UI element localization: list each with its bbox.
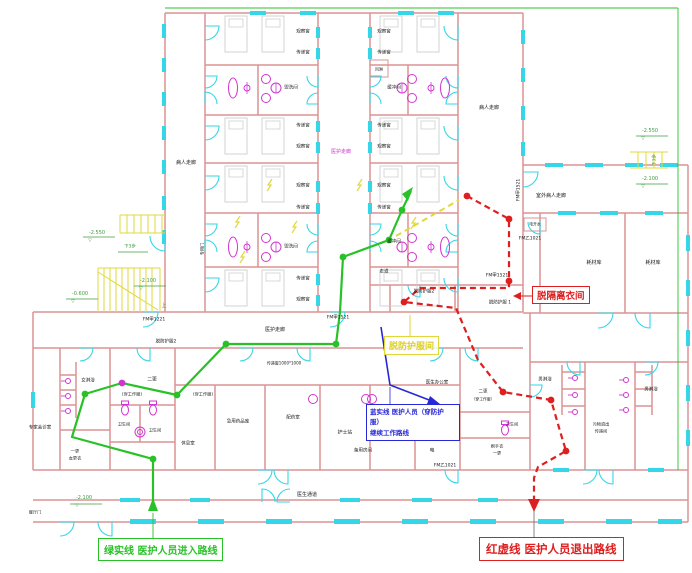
room-label: 医护走廊 bbox=[265, 326, 285, 333]
window-mark bbox=[334, 519, 360, 524]
door-arc bbox=[60, 522, 74, 536]
room-label: 耗材库 bbox=[645, 259, 660, 266]
room-label: 盥洗间 bbox=[284, 243, 298, 250]
lightning-mark-icon bbox=[357, 179, 362, 191]
room-label: 医生办公室 bbox=[426, 379, 449, 386]
window-mark bbox=[300, 11, 316, 15]
route-node-dot bbox=[548, 397, 555, 404]
window-mark bbox=[368, 142, 372, 153]
window-mark bbox=[190, 498, 210, 502]
basin-icon bbox=[408, 94, 417, 103]
room-label: 专用门 bbox=[199, 243, 206, 256]
entry-route-legend: 绿实线 医护人员进入路线 bbox=[98, 538, 223, 561]
door-arc bbox=[80, 348, 93, 361]
window-mark bbox=[412, 498, 432, 502]
shower-head-icon bbox=[573, 410, 578, 415]
window-mark bbox=[686, 430, 690, 446]
route-arrowhead bbox=[528, 499, 540, 512]
room-label: 卫生间 bbox=[118, 421, 131, 428]
window-mark bbox=[340, 498, 360, 502]
window-mark bbox=[368, 27, 372, 38]
room-label: 走道 bbox=[380, 268, 389, 275]
tub-fixture-icon bbox=[441, 78, 450, 98]
room-label: 病人走廊 bbox=[479, 104, 499, 111]
door-arc bbox=[446, 224, 458, 236]
route-node-dot bbox=[464, 193, 471, 200]
shower-head-icon bbox=[66, 409, 71, 414]
window-mark bbox=[162, 160, 166, 174]
bed-pillow bbox=[266, 19, 280, 27]
door-arc bbox=[205, 176, 219, 190]
room-label: 女更衣 bbox=[69, 455, 82, 462]
window-mark bbox=[521, 68, 525, 82]
door-arc bbox=[205, 126, 219, 140]
continue-work-note-line2: 继续工作路线 bbox=[370, 429, 409, 437]
window-mark bbox=[686, 280, 690, 296]
door-arc bbox=[137, 348, 150, 361]
room-label: 休息室 bbox=[181, 440, 195, 447]
room-label: ▽ bbox=[139, 287, 143, 292]
room-label: 污物退出 bbox=[593, 421, 610, 428]
room-label: 下3步 bbox=[124, 244, 136, 250]
window-mark bbox=[368, 48, 372, 59]
room-label: 传递间 bbox=[595, 428, 608, 435]
window-mark bbox=[316, 142, 320, 153]
room-label: 脱防护服 1 bbox=[489, 299, 511, 306]
toilet-icon bbox=[122, 401, 129, 405]
shower-head-icon bbox=[66, 379, 71, 384]
room-label: 卫生间 bbox=[506, 421, 519, 428]
window-mark bbox=[162, 92, 166, 106]
door-arc bbox=[567, 362, 580, 375]
shower-head-icon bbox=[624, 393, 629, 398]
bed bbox=[417, 118, 439, 154]
room-label: -2.100 bbox=[76, 495, 92, 501]
room-label: ▽ bbox=[71, 300, 75, 305]
room-label: 传递窗 bbox=[377, 49, 391, 56]
room-label: 观察窗 bbox=[296, 296, 310, 303]
bed-pillow bbox=[421, 19, 435, 27]
door-arc bbox=[258, 470, 272, 484]
toilet-icon bbox=[122, 405, 129, 415]
remove-isolation-gown-callout: 脱隔离衣间 bbox=[532, 286, 590, 304]
window-mark bbox=[553, 468, 569, 472]
room-label: FM乙1021 bbox=[434, 462, 457, 469]
lightning-mark-icon bbox=[411, 217, 416, 229]
room-label: 观察窗 bbox=[296, 143, 310, 150]
room-label: 电开水 bbox=[529, 222, 541, 227]
bed bbox=[225, 16, 247, 52]
route-node-dot bbox=[506, 278, 513, 285]
window-mark bbox=[521, 30, 525, 44]
room-label: 医护走廊 bbox=[331, 148, 351, 155]
window-mark bbox=[645, 211, 663, 215]
door-arc bbox=[444, 126, 458, 140]
route-node-dot bbox=[119, 380, 126, 387]
window-mark bbox=[686, 235, 690, 251]
bed bbox=[225, 166, 247, 202]
shower-head-icon bbox=[573, 376, 578, 381]
window-mark bbox=[316, 121, 320, 132]
tub-fixture-icon bbox=[229, 237, 238, 257]
route-node-dot bbox=[223, 341, 230, 348]
bed-pillow bbox=[229, 169, 243, 177]
lightning-mark-icon bbox=[235, 216, 240, 228]
window-mark bbox=[198, 519, 224, 524]
bed bbox=[225, 118, 247, 154]
basin-icon bbox=[309, 395, 318, 404]
route-node-dot bbox=[506, 216, 513, 223]
door-arc bbox=[307, 93, 318, 104]
window-mark bbox=[31, 392, 35, 408]
room-label: 传递窗 bbox=[296, 49, 310, 56]
door-arc bbox=[444, 26, 458, 40]
door-arc bbox=[599, 470, 613, 484]
room-label: 男淋浴 bbox=[538, 376, 552, 383]
room-label: 病人走廊 bbox=[176, 159, 196, 166]
basin-icon bbox=[262, 253, 271, 262]
room-label: FM甲1521 bbox=[327, 315, 350, 321]
bed bbox=[225, 270, 247, 306]
window-mark bbox=[658, 519, 682, 524]
window-mark bbox=[545, 163, 563, 167]
route-node-dot bbox=[401, 299, 408, 306]
basin-icon bbox=[408, 75, 417, 84]
room-label: 脱防护服2 bbox=[156, 338, 177, 345]
window-mark bbox=[686, 330, 690, 346]
bed bbox=[262, 270, 284, 306]
exit-route-legend: 红虚线 医护人员退出路线 bbox=[479, 537, 624, 561]
bed bbox=[380, 270, 402, 306]
bed-pillow bbox=[229, 273, 243, 281]
room-label: ▽ bbox=[88, 239, 92, 244]
route-node-dot bbox=[563, 448, 570, 455]
bed-pillow bbox=[229, 121, 243, 129]
window-mark bbox=[368, 121, 372, 132]
door-arc bbox=[446, 92, 458, 104]
toilet-icon bbox=[150, 401, 157, 405]
door-arc bbox=[370, 76, 381, 87]
shower-head-icon bbox=[624, 378, 629, 383]
door-arc bbox=[445, 470, 458, 483]
bed-pillow bbox=[421, 121, 435, 129]
room-label: FM甲1521 bbox=[486, 273, 509, 279]
continue-work-note-line1: 蓝实线 医护人员（穿防护服） bbox=[370, 408, 444, 426]
window-mark bbox=[686, 385, 690, 401]
window-mark bbox=[470, 519, 496, 524]
basin-icon bbox=[408, 234, 417, 243]
window-mark bbox=[162, 126, 166, 140]
window-mark bbox=[120, 498, 140, 502]
door-arc bbox=[307, 241, 318, 252]
door-arc bbox=[598, 313, 613, 328]
door-arc bbox=[444, 176, 458, 190]
window-mark bbox=[316, 203, 320, 214]
room-label: 观察窗 bbox=[377, 182, 391, 189]
room-label: 男淋浴 bbox=[644, 386, 658, 393]
window-mark bbox=[398, 11, 414, 15]
route-node-dot bbox=[150, 456, 157, 463]
window-mark bbox=[585, 163, 603, 167]
room-label: FM甲1521 bbox=[516, 179, 522, 202]
door-arc bbox=[307, 224, 318, 235]
door-arc bbox=[446, 240, 458, 252]
room-label: 传递窗 bbox=[296, 204, 310, 211]
door-arc bbox=[370, 224, 381, 235]
room-label: 下3步 bbox=[652, 154, 658, 166]
lightning-mark-icon bbox=[292, 221, 297, 233]
door-arc bbox=[240, 348, 253, 361]
room-label: FM乙1021 bbox=[519, 235, 542, 242]
door-arc bbox=[205, 240, 217, 252]
room-label: 传递窗 bbox=[296, 275, 310, 282]
window-mark bbox=[162, 196, 166, 210]
room-label: (穿工作服) bbox=[193, 391, 213, 398]
window-mark bbox=[368, 181, 372, 192]
room-label: 一更 bbox=[493, 451, 502, 457]
window-mark bbox=[600, 211, 618, 215]
route-node-dot bbox=[174, 392, 181, 399]
window-mark bbox=[266, 519, 292, 524]
door-arc bbox=[530, 385, 542, 397]
room-label: -2.550 bbox=[89, 230, 105, 236]
room-label: ▽ bbox=[641, 185, 645, 190]
door-arc bbox=[205, 224, 217, 236]
bed bbox=[262, 16, 284, 52]
window-mark bbox=[316, 295, 320, 306]
window-mark bbox=[521, 142, 525, 156]
door-arc bbox=[523, 172, 538, 187]
route-node-dot bbox=[500, 389, 507, 396]
entry-route-line bbox=[72, 191, 411, 507]
room-label: 配药室 bbox=[286, 414, 300, 421]
window-mark bbox=[538, 519, 564, 524]
room-label: 脱防护服2 bbox=[414, 288, 435, 295]
room-label: -2.100 bbox=[642, 176, 658, 182]
route-node-dot bbox=[82, 391, 89, 398]
tub-fixture-icon bbox=[441, 237, 450, 257]
room-label: -0.600 bbox=[72, 291, 88, 297]
door-arc bbox=[446, 76, 458, 88]
window-mark bbox=[478, 498, 498, 502]
room-label: ▽ bbox=[75, 504, 79, 509]
floor-plan-stage: 观察窗传递窗传递窗观察窗观察窗传递窗传递窗观察窗观察窗传递窗传递窗观察窗观察窗传… bbox=[0, 0, 692, 573]
room-label: 缓冲间 bbox=[387, 84, 401, 91]
route-arrowhead bbox=[513, 292, 521, 300]
room-label: 风淋 bbox=[375, 66, 383, 72]
door-arc bbox=[98, 522, 112, 536]
bed-pillow bbox=[384, 169, 398, 177]
room-label: ▽ bbox=[641, 137, 645, 142]
bed bbox=[262, 118, 284, 154]
room-label: 刷手衣 bbox=[491, 443, 504, 450]
door-arc bbox=[583, 470, 597, 484]
bed bbox=[417, 16, 439, 52]
room-label: 传递窗 bbox=[377, 204, 391, 211]
window-mark bbox=[316, 181, 320, 192]
room-label: 观察窗 bbox=[296, 182, 310, 189]
route-arrowhead bbox=[427, 396, 440, 404]
room-label: 室外病人走廊 bbox=[536, 192, 566, 199]
room-label: 餐厅门 bbox=[29, 509, 42, 516]
transition-route-line bbox=[396, 200, 459, 236]
room-label: (穿工作服) bbox=[122, 391, 142, 398]
bed bbox=[417, 166, 439, 202]
lightning-mark-icon bbox=[240, 251, 245, 263]
room-label: 护士站 bbox=[338, 429, 353, 436]
remove-ppe-callout: 脱防护服间 bbox=[384, 336, 439, 355]
room-label: 女淋浴 bbox=[81, 377, 95, 384]
room-label: 传递窗1000*1000 bbox=[267, 360, 302, 366]
bed-pillow bbox=[266, 121, 280, 129]
room-label: -2.100 bbox=[140, 278, 156, 284]
room-label: 专家会诊室 bbox=[29, 424, 52, 431]
window-mark bbox=[162, 24, 166, 38]
door-arc bbox=[205, 76, 217, 88]
room-label: 备用房间 bbox=[354, 447, 372, 454]
bed-pillow bbox=[421, 169, 435, 177]
route-node-dot bbox=[340, 254, 347, 261]
window-mark bbox=[316, 48, 320, 59]
lightning-mark-icon bbox=[267, 179, 272, 191]
room-label: 缓冲间 bbox=[387, 238, 401, 245]
door-arc bbox=[205, 26, 219, 40]
room-label: 卫生间 bbox=[149, 427, 162, 434]
route-node-dot bbox=[333, 341, 340, 348]
room-label: 观察窗 bbox=[377, 28, 391, 35]
room-label: 电 bbox=[430, 447, 435, 454]
window-mark bbox=[660, 163, 678, 167]
window-mark bbox=[162, 58, 166, 72]
bed-pillow bbox=[229, 19, 243, 27]
window-mark bbox=[250, 11, 266, 15]
window-mark bbox=[521, 106, 525, 120]
window-mark bbox=[558, 211, 576, 215]
toilet-icon bbox=[150, 405, 157, 415]
door-arc bbox=[274, 470, 288, 484]
window-mark bbox=[316, 27, 320, 38]
route-arrowhead bbox=[402, 187, 413, 201]
room-label: 上 bbox=[161, 302, 166, 309]
door-arc bbox=[635, 313, 650, 328]
door-arc bbox=[297, 348, 310, 361]
room-label: 观察窗 bbox=[377, 143, 391, 150]
room-label: 观察窗 bbox=[296, 28, 310, 35]
window-mark bbox=[368, 203, 372, 214]
room-label: 一更 bbox=[71, 449, 80, 455]
bed-pillow bbox=[266, 169, 280, 177]
room-label: 盥洗间 bbox=[284, 84, 298, 91]
window-mark bbox=[625, 163, 643, 167]
basin-icon bbox=[262, 234, 271, 243]
toilet-icon bbox=[502, 425, 509, 435]
window-mark bbox=[130, 519, 156, 524]
bed-pillow bbox=[421, 273, 435, 281]
basin-icon bbox=[408, 253, 417, 262]
window-mark bbox=[402, 519, 428, 524]
route-node-dot bbox=[399, 207, 406, 214]
room-label: 耗材库 bbox=[586, 259, 601, 266]
door-arc bbox=[205, 278, 219, 292]
basin-icon bbox=[368, 395, 377, 404]
room-label: 医生通道 bbox=[297, 491, 317, 498]
room-label: 二更 bbox=[147, 377, 157, 383]
door-arc bbox=[307, 76, 318, 87]
bed-pillow bbox=[384, 19, 398, 27]
basin-icon bbox=[262, 75, 271, 84]
room-label: -2.550 bbox=[642, 128, 658, 134]
basin-icon bbox=[262, 94, 271, 103]
shower-head-icon bbox=[624, 408, 629, 413]
room-label: 急用药品库 bbox=[227, 418, 250, 425]
window-mark bbox=[648, 468, 664, 472]
tub-fixture-icon bbox=[229, 78, 238, 98]
door-arc bbox=[205, 92, 217, 104]
room-label: 二更 bbox=[479, 389, 488, 395]
door-arc bbox=[370, 93, 381, 104]
window-mark bbox=[438, 11, 454, 15]
window-mark bbox=[316, 274, 320, 285]
room-label: FM甲1221 bbox=[143, 317, 166, 323]
shower-head-icon bbox=[573, 393, 578, 398]
room-label: 传递窗 bbox=[377, 122, 391, 129]
room-label: 传递窗 bbox=[296, 122, 310, 129]
bed bbox=[262, 166, 284, 202]
bed-pillow bbox=[266, 273, 280, 281]
shower-head-icon bbox=[66, 394, 71, 399]
room-label: （穿工作服） bbox=[472, 397, 495, 402]
continue-work-note: 蓝实线 医护人员（穿防护服） 继续工作路线 bbox=[366, 404, 460, 441]
window-mark bbox=[606, 519, 632, 524]
